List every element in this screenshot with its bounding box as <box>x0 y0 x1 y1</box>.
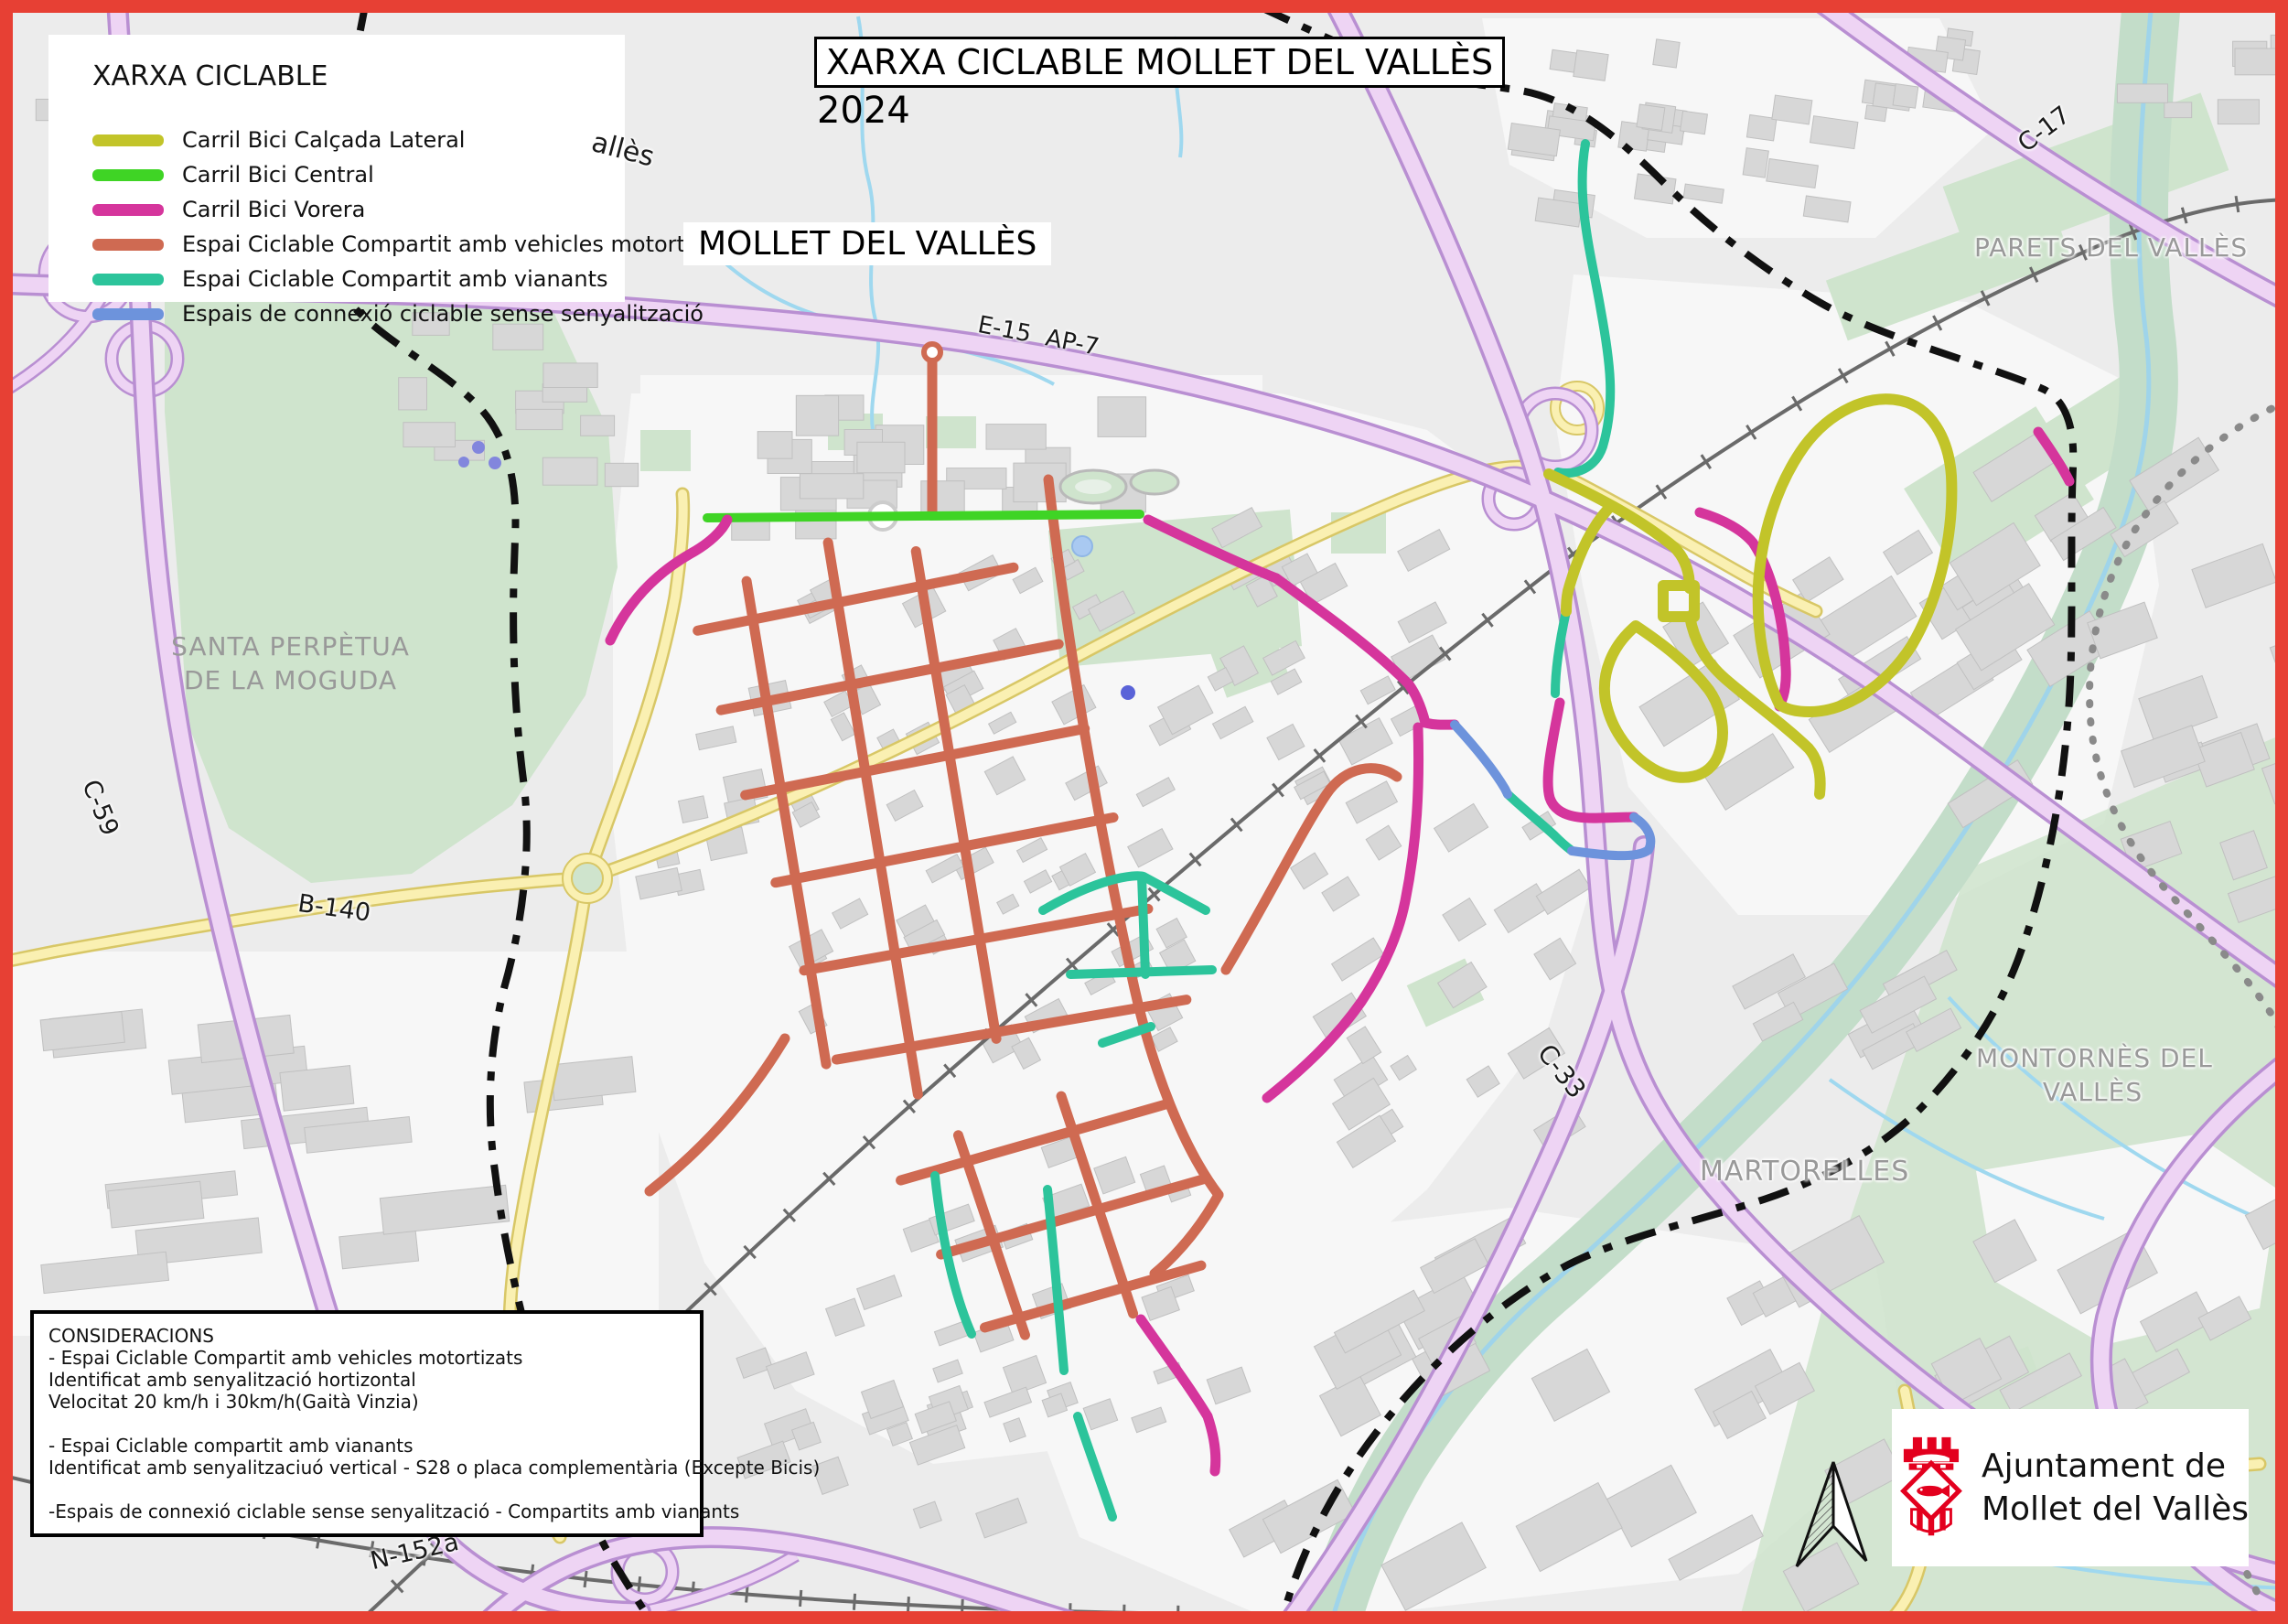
city-label-montornes: MONTORNÈS DEL VALLÈS <box>1976 1041 2209 1109</box>
footer-logo: Ajuntament de Mollet del Vallès <box>1892 1409 2249 1566</box>
city-label-martorelles: MARTORELLES <box>1700 1155 1909 1188</box>
city-label-santa-perpetua: SANTA PERPÈTUA DE LA MOGUDA <box>169 629 412 697</box>
legend-item-connexio: Espais de connexió ciclable sense senyal… <box>92 300 704 328</box>
year-label: 2024 <box>817 90 910 132</box>
legend-title: XARXA CICLABLE <box>92 60 328 92</box>
legend-item-vianants: Espai Ciclable Compartit amb vianants <box>92 265 608 293</box>
legend-swatch-calcada-lateral <box>92 134 164 146</box>
legend-item-central: Carril Bici Central <box>92 161 374 188</box>
consideracions-title: CONSIDERACIONS <box>48 1325 685 1347</box>
city-crest <box>1892 1411 1971 1565</box>
legend-swatch-central <box>92 169 164 181</box>
legend-swatch-vehicles <box>92 239 164 251</box>
city-label-parets: PARETS DEL VALLÈS <box>1974 231 2248 264</box>
legend-item-vorera: Carril Bici Vorera <box>92 196 365 223</box>
route-carril-bici-central <box>707 514 1140 518</box>
consideracions-box: CONSIDERACIONS - Espai Ciclable Comparti… <box>30 1310 704 1537</box>
legend-swatch-connexio <box>92 308 164 320</box>
legend-item-vehicles: Espai Ciclable Compartit amb vehicles mo… <box>92 231 736 258</box>
legend-swatch-vorera <box>92 204 164 216</box>
legend-item-calcada-lateral: Carril Bici Calçada Lateral <box>92 126 465 154</box>
legend-swatch-vianants <box>92 274 164 285</box>
logo-text: Ajuntament de Mollet del Vallès <box>1982 1445 2249 1531</box>
map-poster: XARXA CICLABLE Carril Bici Calçada Later… <box>0 0 2288 1624</box>
legend: XARXA CICLABLE Carril Bici Calçada Later… <box>48 35 625 302</box>
city-label-mollet: MOLLET DEL VALLÈS <box>683 222 1051 265</box>
map-title: XARXA CICLABLE MOLLET DEL VALLÈS <box>814 37 1505 88</box>
